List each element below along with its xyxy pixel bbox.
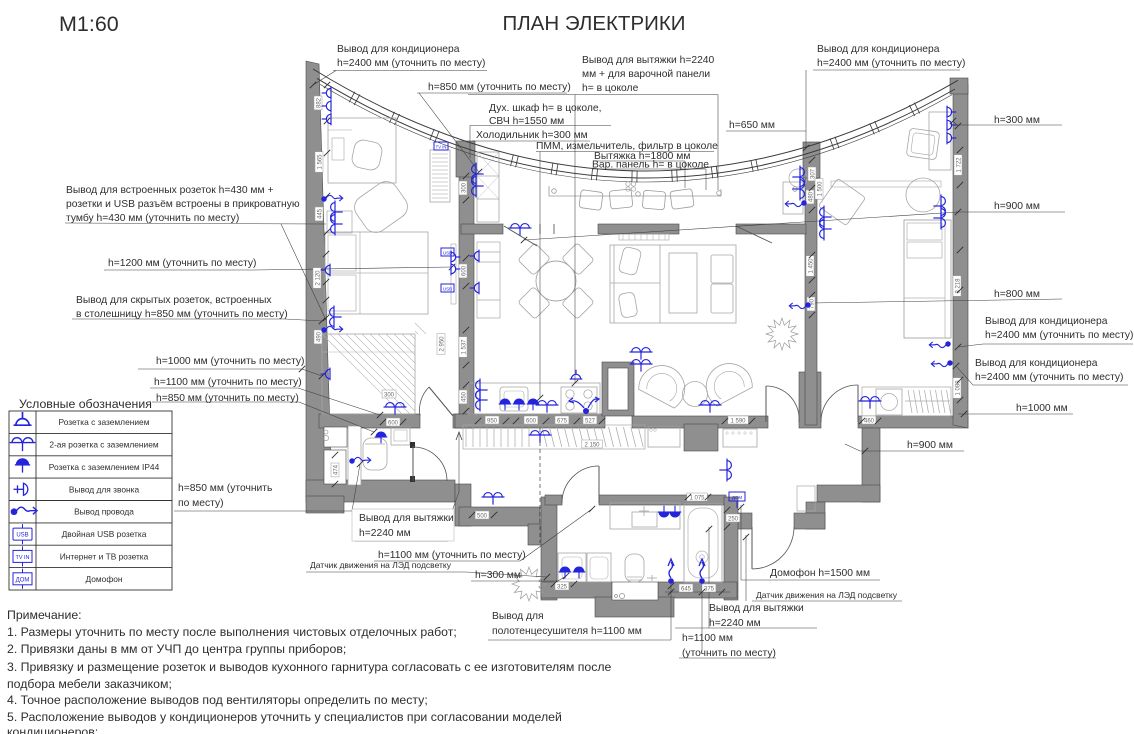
svg-text:Вывод для: Вывод для <box>492 611 544 622</box>
svg-text:h= в цоколе: h= в цоколе <box>582 83 639 94</box>
svg-text:1 565: 1 565 <box>317 154 323 170</box>
svg-text:307: 307 <box>810 168 816 179</box>
svg-text:h=2400 мм (уточнить по месту): h=2400 мм (уточнить по месту) <box>337 58 485 69</box>
svg-text:h=850 мм (уточнить по месту): h=850 мм (уточнить по месту) <box>156 393 299 404</box>
svg-text:600: 600 <box>388 420 399 426</box>
svg-text:USB: USB <box>16 533 28 539</box>
svg-text:527: 527 <box>585 418 596 424</box>
svg-text:1. Размеры уточнить по месту п: 1. Размеры уточнить по месту после выпол… <box>7 625 457 639</box>
svg-text:Холодильник h=300 мм: Холодильник h=300 мм <box>476 130 588 141</box>
svg-text:полотенцесушителя h=1100 мм: полотенцесушителя h=1100 мм <box>492 626 642 637</box>
svg-text:Интернет и ТВ розетка: Интернет и ТВ розетка <box>60 551 149 561</box>
svg-text:300: 300 <box>384 392 395 398</box>
svg-text:Розетка с заземлением: Розетка с заземлением <box>59 417 150 427</box>
svg-text:474: 474 <box>333 464 339 475</box>
svg-text:600: 600 <box>461 265 467 276</box>
svg-text:Вар. панель h= в цоколе: Вар. панель h= в цоколе <box>592 160 709 171</box>
svg-text:600: 600 <box>526 418 537 424</box>
svg-text:Вывод для скрытых розеток, вст: Вывод для скрытых розеток, встроенных <box>76 295 272 306</box>
svg-text:1 590: 1 590 <box>730 418 746 424</box>
svg-text:Дух. шкаф h= в цоколе,: Дух. шкаф h= в цоколе, <box>489 102 601 114</box>
svg-text:TV IN: TV IN <box>436 145 447 150</box>
svg-text:1 722: 1 722 <box>956 157 962 173</box>
svg-text:1 450: 1 450 <box>808 258 814 274</box>
svg-text:h=1100 мм (уточнить по месту): h=1100 мм (уточнить по месту) <box>154 377 302 388</box>
svg-text:h=1100 мм: h=1100 мм <box>682 633 733 644</box>
svg-text:h=2240 мм: h=2240 мм <box>359 528 411 539</box>
svg-text:645: 645 <box>681 586 692 592</box>
svg-text:Розетка с заземлением IP44: Розетка с заземлением IP44 <box>49 462 160 472</box>
svg-text:1 500: 1 500 <box>817 181 823 197</box>
svg-text:кондиционеров;: кондиционеров; <box>7 725 98 734</box>
svg-text:h=2400 мм (уточнить по месту): h=2400 мм (уточнить по месту) <box>985 330 1133 341</box>
svg-text:ДОМ: ДОМ <box>732 495 743 500</box>
svg-text:М1:60: М1:60 <box>59 12 119 36</box>
svg-text:300: 300 <box>461 182 467 193</box>
svg-text:Двойная USB розетка: Двойная USB розетка <box>62 529 147 539</box>
svg-text:h=300 мм: h=300 мм <box>994 115 1040 126</box>
svg-text:3. Привязку и размещение розет: 3. Привязку и размещение розеток и вывод… <box>7 660 612 674</box>
svg-text:Вывод для кондиционера: Вывод для кондиционера <box>975 358 1098 369</box>
svg-text:2 150: 2 150 <box>584 442 600 448</box>
svg-text:h=850 мм (уточнить по месту): h=850 мм (уточнить по месту) <box>428 82 571 93</box>
svg-text:675: 675 <box>557 418 568 424</box>
svg-text:розетки и USB разъём встроены: розетки и USB разъём встроены в прикрова… <box>66 199 300 210</box>
svg-text:h=2240 мм: h=2240 мм <box>709 618 761 629</box>
svg-text:Вывод для вытяжки h=2240: Вывод для вытяжки h=2240 <box>582 55 715 66</box>
svg-text:490: 490 <box>316 331 322 342</box>
svg-text:h=900 мм: h=900 мм <box>907 440 953 451</box>
svg-text:Домофон h=1500 мм: Домофон h=1500 мм <box>770 567 870 579</box>
svg-text:Примечание:: Примечание: <box>7 608 82 622</box>
svg-text:480: 480 <box>808 191 814 202</box>
svg-text:h=900 мм: h=900 мм <box>994 201 1040 212</box>
svg-text:Вывод провода: Вывод провода <box>74 507 134 517</box>
svg-text:h=1000 мм: h=1000 мм <box>1016 403 1068 414</box>
svg-text:TV IN: TV IN <box>15 555 29 561</box>
svg-text:USB: USB <box>443 251 452 256</box>
svg-text:2. Привязки даны в мм от УЧП д: 2. Привязки даны в мм от УЧП до центра г… <box>7 642 346 656</box>
svg-text:450: 450 <box>461 391 467 402</box>
svg-text:460: 460 <box>864 418 875 424</box>
svg-text:в столешницу h=850 мм (уточнит: в столешницу h=850 мм (уточнить по месту… <box>76 309 288 320</box>
svg-text:Вывод для кондиционера: Вывод для кондиционера <box>337 44 460 55</box>
svg-text:1 537: 1 537 <box>461 339 467 355</box>
svg-text:тумбу h=430 мм (уточнить по ме: тумбу h=430 мм (уточнить по месту) <box>66 212 239 224</box>
svg-text:Вывод для вытяжки: Вывод для вытяжки <box>359 513 454 524</box>
svg-text:ДОМ: ДОМ <box>16 577 30 583</box>
svg-text:950: 950 <box>487 418 498 424</box>
svg-text:ПЛАН ЭЛЕКТРИКИ: ПЛАН ЭЛЕКТРИКИ <box>502 12 685 35</box>
svg-text:Вывод для встроенных розеток h: Вывод для встроенных розеток h=430 мм + <box>66 185 273 196</box>
svg-text:Вывод для кондиционера: Вывод для кондиционера <box>985 316 1108 327</box>
svg-text:USB: USB <box>443 287 452 292</box>
svg-text:h=2400 мм (уточнить по месту): h=2400 мм (уточнить по месту) <box>975 372 1123 383</box>
svg-text:Датчик движения на ЛЭД подсвет: Датчик движения на ЛЭД подсветку <box>310 560 452 570</box>
svg-text:h=1000 мм (уточнить по месту): h=1000 мм (уточнить по месту) <box>156 356 304 367</box>
svg-text:2 950: 2 950 <box>439 336 445 352</box>
svg-text:Датчик движения на ЛЭД подсвет: Датчик движения на ЛЭД подсветку <box>756 590 898 600</box>
svg-text:882: 882 <box>316 97 322 108</box>
svg-text:СВЧ h=1550 мм: СВЧ h=1550 мм <box>489 116 564 127</box>
svg-text:h=2400 мм (уточнить по месту): h=2400 мм (уточнить по месту) <box>817 58 965 69</box>
svg-text:250: 250 <box>728 516 739 522</box>
svg-text:Вывод для кондиционера: Вывод для кондиционера <box>817 44 940 55</box>
svg-text:2 120: 2 120 <box>315 270 321 286</box>
svg-text:375: 375 <box>704 586 715 592</box>
svg-text:h=800 мм: h=800 мм <box>994 289 1040 300</box>
svg-text:подбора мебели заказчиком;: подбора мебели заказчиком; <box>7 677 172 691</box>
svg-text:5. Расположение выводов у конд: 5. Расположение выводов у кондиционеров … <box>7 710 562 724</box>
svg-text:(уточнить по месту): (уточнить по месту) <box>682 648 776 659</box>
svg-text:по месту): по месту) <box>178 498 224 509</box>
svg-text:Домофон: Домофон <box>85 574 122 584</box>
svg-text:2-ая розетка с заземлением: 2-ая розетка с заземлением <box>49 440 159 450</box>
svg-text:4. Точное расположение выводов: 4. Точное расположение выводов под венти… <box>7 693 428 707</box>
svg-text:h=1200 мм (уточнить по месту): h=1200 мм (уточнить по месту) <box>108 258 256 269</box>
svg-text:445: 445 <box>317 208 323 219</box>
svg-text:h=850 мм (уточнить: h=850 мм (уточнить <box>178 483 272 494</box>
svg-text:Вывод для вытяжки: Вывод для вытяжки <box>709 603 804 614</box>
svg-text:Вывод для звонка: Вывод для звонка <box>69 484 140 494</box>
svg-text:Условные обозначения: Условные обозначения <box>19 397 152 411</box>
svg-text:мм + для варочной панели: мм + для варочной панели <box>582 69 710 80</box>
svg-text:h=650 мм: h=650 мм <box>729 120 775 131</box>
svg-text:h=300 мм: h=300 мм <box>475 570 521 581</box>
svg-text:500: 500 <box>477 513 488 519</box>
svg-text:325: 325 <box>557 584 568 590</box>
svg-text:1 075: 1 075 <box>689 495 705 501</box>
